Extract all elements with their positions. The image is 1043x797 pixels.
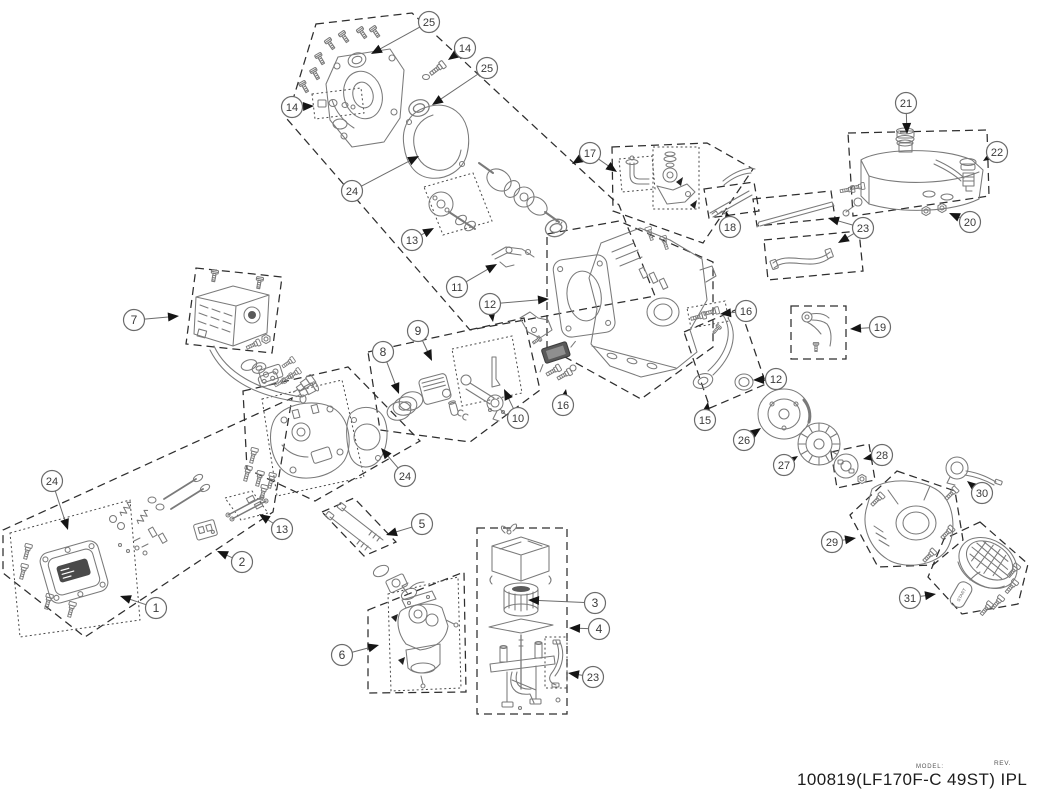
svg-text:5: 5 [419,517,426,531]
callout-arrowhead [753,375,764,384]
svg-text:15: 15 [699,415,711,427]
callout-arrowhead [605,162,617,172]
callout-8: 8 [373,342,400,395]
oil-seal [407,97,432,119]
fuel-tank-group [840,128,983,216]
parts-layer: START [18,25,1027,709]
svg-text:24: 24 [346,186,358,198]
governor-group [626,152,834,227]
breather-tube [550,640,563,687]
callout-5: 5 [386,514,433,537]
callout-arrowhead [386,527,398,536]
box-carburetor [368,572,466,693]
svg-text:3: 3 [592,596,599,610]
svg-text:30: 30 [976,488,988,500]
callout-arrowhead [217,551,229,560]
callout-arrowhead [850,324,861,333]
callout-arrowhead [528,596,539,605]
svg-text:22: 22 [991,147,1003,159]
svg-text:14: 14 [459,43,471,55]
svg-text:6: 6 [339,648,346,662]
svg-text:24: 24 [46,476,58,488]
callout-30: 30 [967,481,993,504]
svg-text:8: 8 [380,345,387,359]
connecting-rod [461,357,506,421]
callout-25: 25 [432,58,498,106]
cylinder-block-group [520,226,720,382]
callout-24: 24 [342,156,420,202]
callout-21: 21 [896,93,917,135]
air-cleaner-group [489,524,563,710]
valve-spring [136,509,150,526]
svg-text:23: 23 [587,672,599,684]
piston [418,373,452,405]
piston-rings [385,389,425,423]
cooling-fan [798,423,840,465]
callout-2: 2 [217,551,253,573]
governor-rod [710,191,749,213]
svg-text:9: 9 [415,324,422,338]
callout-arrowhead [569,624,580,633]
svg-text:24: 24 [399,471,411,483]
crankcase-cover [326,49,404,147]
callout-15: 15 [695,402,716,431]
callout-arrowhead [568,670,580,679]
box-intake-pipe [684,308,766,408]
cylinder-head [270,403,349,478]
oil-seal-right [735,374,753,390]
callout-arrowhead [485,264,497,273]
spark-plug [294,381,320,401]
callout-14: 14 [282,97,315,118]
svg-text:19: 19 [874,322,886,334]
rev-label: REV. [994,760,1011,767]
box-fan-cover [850,471,963,567]
callout-arrowhead [844,535,856,544]
callout-20: 20 [949,212,981,233]
box-carburetor-inner [388,577,461,691]
callout-arrowhead [423,349,432,361]
svg-text:25: 25 [423,17,435,29]
cylinder-gasket [552,254,616,339]
document-title: 100819(LF170F-C 49ST) IPL [797,770,1027,790]
svg-text:4: 4 [596,622,603,636]
muffler-group [194,269,316,403]
svg-text:10: 10 [512,413,524,425]
callout-arrowhead [303,102,314,111]
callout-arrowhead [259,514,271,524]
svg-text:13: 13 [406,235,418,247]
box-connecting-rod [452,336,522,406]
callout-13: 13 [402,228,435,251]
parts-diagram-page: START [0,0,1043,797]
svg-text:16: 16 [740,306,752,318]
box-air-cleaner [477,528,567,714]
svg-text:26: 26 [738,435,750,447]
element-gasket [489,619,553,633]
svg-text:13: 13 [276,524,288,536]
callout-26: 26 [734,428,762,451]
box-camshaft [424,173,492,235]
svg-text:23: 23 [857,223,869,235]
carburetor-body [398,604,448,650]
callout-6: 6 [332,644,380,666]
fan-cover [865,481,959,565]
box-starter-cup [831,444,875,488]
callout-13: 13 [259,514,293,540]
svg-text:21: 21 [900,98,912,110]
callout-10: 10 [504,389,529,429]
svg-text:12: 12 [770,374,782,386]
svg-text:1: 1 [153,601,160,615]
recoil-handle-text: START [956,587,968,602]
fuel-tank [861,151,983,211]
camshaft [429,192,477,233]
svg-text:11: 11 [451,282,462,294]
callout-14: 14 [448,38,476,61]
air-cleaner-cover [492,537,549,581]
callout-arrowhead [924,591,936,600]
stop-switch [946,457,1002,485]
svg-text:20: 20 [964,217,976,229]
head-cover [38,539,110,606]
box-crankcase-cover-group [287,13,655,330]
callout-22: 22 [983,142,1008,163]
stud [342,508,383,540]
piston-pin [448,400,459,416]
callout-12: 12 [753,369,787,390]
svg-text:12: 12 [484,299,496,311]
governor-arm [492,247,534,267]
ignition-coil [534,339,581,372]
crankshaft [479,163,569,239]
callout-28: 28 [863,445,893,466]
recoil-starter: START [948,527,1026,617]
starter-cup [834,454,866,484]
svg-text:7: 7 [131,313,138,327]
svg-text:16: 16 [557,400,569,412]
svg-text:31: 31 [904,593,916,605]
box-oil-elbow [619,156,655,192]
box-fuel-line [764,231,863,280]
fuel-filter [960,159,976,192]
breather-plate [193,519,218,540]
svg-text:25: 25 [481,63,493,75]
svg-text:28: 28 [876,450,888,462]
callout-25: 25 [371,12,440,55]
callout-arrowhead [391,382,399,394]
callout-arrowhead [371,45,383,54]
stud-bolt [428,60,446,77]
starter-handle: START [948,580,974,610]
svg-text:14: 14 [286,102,298,114]
callout-17: 17 [572,143,617,173]
callout-arrowhead [367,644,379,653]
spark-plug-wire [802,312,831,352]
svg-text:27: 27 [778,460,790,472]
callout-23: 23 [828,217,874,243]
callout-arrowhead [432,95,444,105]
box-breather-tube [545,637,567,688]
svg-text:2: 2 [239,555,246,569]
callout-29: 29 [822,532,857,553]
svg-text:18: 18 [724,222,736,234]
callout-31: 31 [900,588,937,609]
callout-arrowhead [828,217,840,226]
callout-9: 9 [408,321,433,362]
stud [330,517,371,549]
throttle-bar [757,202,834,227]
callout-arrowhead [60,518,69,530]
parts-diagram-canvas: START [0,0,1043,797]
callout-arrowhead [422,228,434,237]
callouts-layer: 1234567891011121213131414151616171819202… [42,12,1008,688]
svg-text:17: 17 [584,148,596,160]
piston-group [385,357,506,423]
callout-arrowhead [120,595,132,604]
callout-19: 19 [850,317,891,338]
callout-4: 4 [569,619,610,640]
fuel-line [770,248,834,270]
callout-7: 7 [124,310,180,331]
callout-23: 23 [568,667,604,688]
svg-text:29: 29 [826,537,838,549]
callout-arrowhead [838,233,850,243]
box-studs [322,498,396,556]
crankcase-cover-group [298,25,468,178]
callout-16: 16 [553,389,574,416]
callout-11: 11 [447,264,498,298]
callout-arrowhead [168,312,179,321]
callout-27: 27 [774,455,799,476]
